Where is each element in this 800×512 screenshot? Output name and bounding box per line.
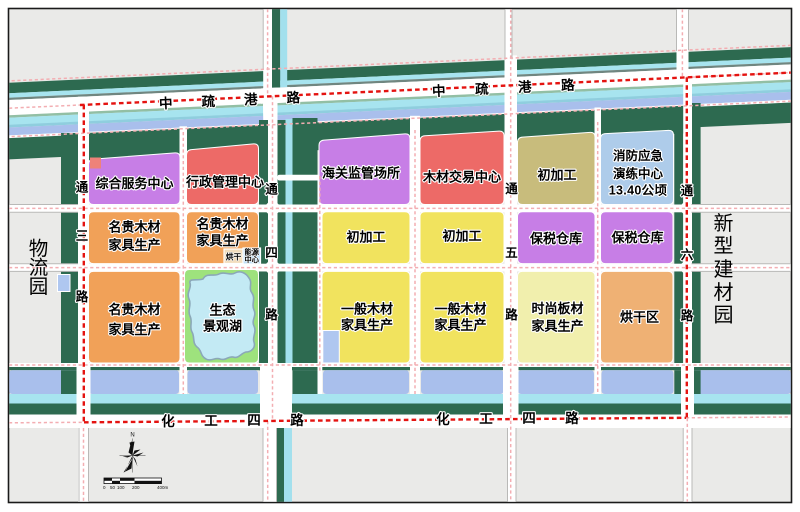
svg-text:工: 工 <box>204 414 218 429</box>
svg-text:生态: 生态 <box>209 303 235 318</box>
svg-text:四: 四 <box>265 246 278 260</box>
svg-text:路: 路 <box>265 307 278 322</box>
svg-text:中: 中 <box>432 82 446 99</box>
svg-text:烘干区: 烘干区 <box>620 310 659 325</box>
svg-text:200: 200 <box>132 485 140 490</box>
svg-text:家具生产: 家具生产 <box>434 318 486 333</box>
svg-text:家具生产: 家具生产 <box>196 233 248 248</box>
svg-text:中心: 中心 <box>245 255 260 264</box>
svg-text:港: 港 <box>244 91 259 108</box>
svg-text:疏: 疏 <box>201 93 216 110</box>
svg-text:名贵木材: 名贵木材 <box>108 220 160 235</box>
svg-text:400m: 400m <box>157 485 169 490</box>
svg-text:型: 型 <box>714 235 734 258</box>
svg-text:50: 50 <box>110 485 116 490</box>
svg-text:材: 材 <box>714 281 734 304</box>
svg-text:一般木材: 一般木材 <box>341 302 393 317</box>
svg-text:初加工: 初加工 <box>537 168 576 183</box>
svg-text:名贵木材: 名贵木材 <box>196 217 248 232</box>
svg-text:工: 工 <box>479 411 493 426</box>
svg-text:三: 三 <box>76 229 89 243</box>
svg-text:疏: 疏 <box>475 80 490 97</box>
svg-text:初加工: 初加工 <box>346 230 385 245</box>
svg-text:家具生产: 家具生产 <box>531 319 583 334</box>
svg-text:路: 路 <box>505 307 518 322</box>
svg-text:路: 路 <box>681 308 694 323</box>
svg-text:家具生产: 家具生产 <box>108 322 160 337</box>
svg-text:景观湖: 景观湖 <box>203 319 242 334</box>
svg-text:港: 港 <box>518 78 533 95</box>
svg-text:消防应急: 消防应急 <box>613 148 664 163</box>
svg-text:化: 化 <box>161 413 175 429</box>
svg-text:化: 化 <box>436 411 450 427</box>
svg-text:园: 园 <box>29 276 49 298</box>
svg-text:六: 六 <box>681 247 694 262</box>
svg-text:路: 路 <box>290 412 304 428</box>
svg-text:四: 四 <box>522 411 536 426</box>
svg-text:保税仓库: 保税仓库 <box>610 230 663 245</box>
svg-text:海关监管场所: 海关监管场所 <box>322 166 400 181</box>
svg-text:名贵木材: 名贵木材 <box>108 302 160 317</box>
svg-text:100: 100 <box>117 485 125 490</box>
svg-text:行政管理中心: 行政管理中心 <box>185 175 264 190</box>
svg-text:木材交易中心: 木材交易中心 <box>422 170 501 185</box>
svg-text:园: 园 <box>714 305 734 327</box>
svg-text:时尚板材: 时尚板材 <box>531 301 583 316</box>
svg-text:13.40公顷: 13.40公顷 <box>609 184 668 198</box>
svg-text:综合服务中心: 综合服务中心 <box>95 176 173 191</box>
svg-text:N: N <box>130 433 134 439</box>
svg-text:路: 路 <box>565 410 579 426</box>
svg-text:家具生产: 家具生产 <box>341 318 393 333</box>
svg-text:通: 通 <box>265 182 278 197</box>
svg-text:演练中心: 演练中心 <box>613 166 664 181</box>
svg-text:五: 五 <box>505 246 518 260</box>
svg-text:四: 四 <box>247 413 261 428</box>
svg-text:路: 路 <box>561 76 576 93</box>
svg-text:家具生产: 家具生产 <box>108 238 160 253</box>
svg-text:保税仓库: 保税仓库 <box>529 231 582 246</box>
svg-text:路: 路 <box>76 289 89 304</box>
svg-text:烘干: 烘干 <box>226 252 242 262</box>
svg-text:中: 中 <box>159 95 173 112</box>
svg-text:路: 路 <box>286 89 301 106</box>
svg-text:新: 新 <box>714 212 734 235</box>
svg-text:通: 通 <box>681 183 694 198</box>
svg-text:初加工: 初加工 <box>442 229 481 244</box>
svg-text:建: 建 <box>714 258 734 281</box>
svg-text:一般木材: 一般木材 <box>434 302 486 317</box>
svg-text:通: 通 <box>76 180 89 195</box>
svg-text:通: 通 <box>505 181 518 196</box>
